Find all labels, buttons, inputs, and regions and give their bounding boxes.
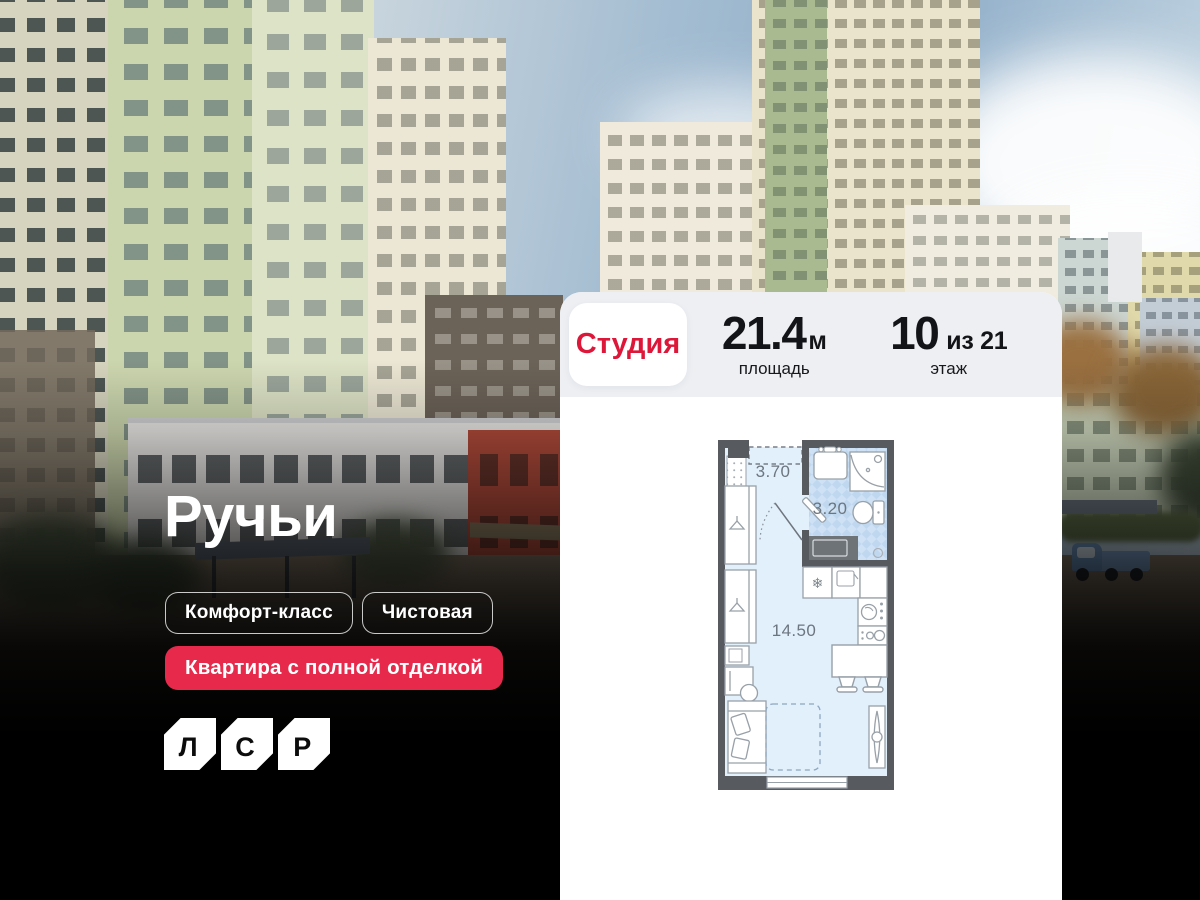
area-stat: 21.4м площадь [687,310,862,379]
tag-chips: Комфорт-класс Чистовая [165,592,493,634]
floor-stat: 10 из 21 этаж [862,310,1037,379]
table [832,645,887,677]
sofa [728,701,766,773]
radiator [869,706,885,768]
bath-sink [814,452,847,479]
kitchen-corner-unit [860,567,887,598]
area-unit: м [808,329,826,354]
toilet-bowl [853,502,873,524]
project-title: Ручьи [164,488,337,546]
chair [839,677,855,687]
living-area-label: 14.50 [772,621,817,640]
burner-unit [858,626,887,645]
floor-suffix: из 21 [946,329,1007,354]
desk-chair [741,685,758,702]
apartment-card: Студия 21.4м площадь 10 из 21 этаж [560,292,1062,900]
logo-letter: Л [179,732,198,763]
pillow [731,738,750,760]
logo-cube: С [221,718,273,770]
card-header: Студия 21.4м площадь 10 из 21 этаж [560,292,1062,397]
floor-value: 10 [890,310,938,356]
area-value: 21.4 [722,310,806,356]
cooktop-unit [858,598,887,626]
promo-banner: Ручьи Комфорт-класс Чистовая Квартира с … [0,0,1200,900]
apartment-type-label: Студия [576,328,680,361]
apartment-type-badge: Студия [569,303,687,386]
floor-plan-svg: ❄ [718,440,894,790]
floor-plan: ❄ [718,440,894,790]
lsr-logo: Л С Р [164,718,330,770]
logo-letter: С [235,732,255,763]
tag-comfort-class[interactable]: Комфорт-класс [165,592,353,634]
bathroom-area-label: 3.20 [813,499,848,518]
logo-cube: Л [164,718,216,770]
hall-area-label: 3.70 [756,462,791,481]
tag-finishing[interactable]: Чистовая [362,592,493,634]
floor-label: этаж [862,359,1037,379]
fridge-snowflake-icon: ❄ [812,575,824,591]
bed [728,701,766,773]
chair [865,677,881,687]
logo-cube: Р [278,718,330,770]
full-finish-badge[interactable]: Квартира с полной отделкой [165,646,503,690]
area-label: площадь [687,359,862,379]
logo-letter: Р [293,732,311,763]
window [767,777,847,788]
wardrobes [725,486,758,702]
